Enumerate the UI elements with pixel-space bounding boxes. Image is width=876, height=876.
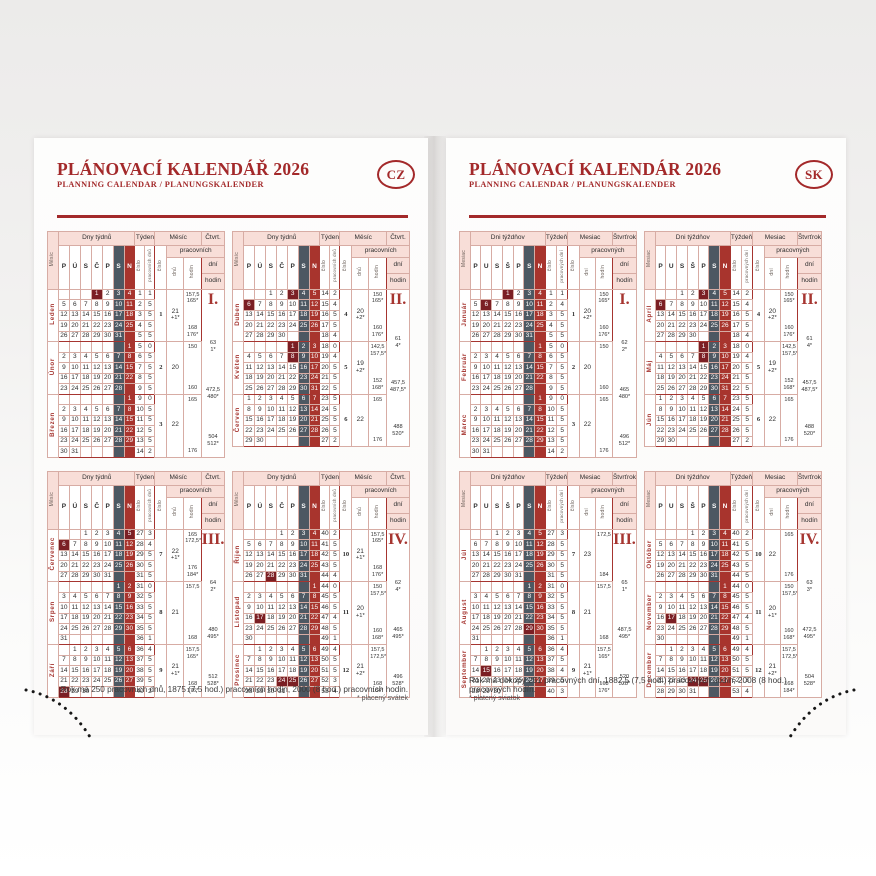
day-cell (698, 436, 709, 447)
month-number-cell: 8 (155, 582, 167, 645)
day-cell: 5 (492, 592, 503, 603)
day-cell: 5 (535, 529, 546, 540)
day-letter-cell: S (709, 485, 720, 529)
day-cell: 7 (113, 405, 124, 416)
month-number-header: číslo (155, 485, 167, 529)
week-workdays-cell: 5 (742, 363, 753, 374)
week-workdays-cell: 5 (145, 363, 155, 374)
day-cell: 22 (80, 561, 91, 572)
week-workdays-cell: 5 (557, 592, 568, 603)
month-group-header: Měsíc (155, 231, 202, 245)
week-number-cell: 26 (730, 426, 741, 437)
day-cell: 11 (481, 603, 492, 614)
page-header-sk: PLÁNOVACÍ KALENDÁR 2026 PLANNING CALENDA… (446, 138, 846, 212)
week-number-cell: 49 (730, 634, 741, 645)
day-cell: 27 (265, 384, 276, 395)
day-cell: 18 (492, 426, 503, 437)
week-workdays-cell: 3 (557, 529, 568, 540)
week-workdays-cell: 0 (145, 582, 155, 593)
week-workdays-cell: 5 (557, 384, 568, 395)
day-cell: 10 (113, 300, 124, 311)
day-letter-cell: N (124, 485, 135, 529)
day-cell (513, 634, 524, 645)
day-cell: 14 (69, 550, 80, 561)
day-cell: 13 (677, 363, 688, 374)
day-cell: 24 (470, 624, 481, 635)
day-cell: 30 (709, 384, 720, 395)
day-cell: 28 (102, 624, 113, 635)
week-number-cell: 5 (135, 342, 145, 353)
day-cell: 17 (276, 666, 287, 677)
day-letter-cell: Š (502, 245, 513, 289)
quarter-table-holder-q4: MesiacDni týždňovTýždeňMesiacŠtvrťrokPUS… (644, 471, 822, 698)
month-group-header: Mesiac (753, 471, 798, 485)
quarter-workdays: 631* (210, 340, 216, 355)
quarter-hours-header: hodín (612, 273, 636, 289)
day-cell: 23 (709, 373, 720, 384)
day-cell: 30 (666, 436, 677, 447)
day-cell: 16 (58, 426, 69, 437)
day-cell: 1 (276, 529, 287, 540)
day-cell: 8 (265, 300, 276, 311)
day-cell: 29 (113, 624, 124, 635)
day-cell: 30 (91, 571, 102, 582)
day-cell: 18 (524, 550, 535, 561)
day-cell: 2 (677, 645, 688, 656)
day-cell: 23 (243, 624, 254, 635)
day-cell: 13 (243, 310, 254, 321)
week-workdays-cell: 1 (557, 289, 568, 300)
day-cell (709, 331, 720, 342)
day-cell: 30 (698, 571, 709, 582)
quarter-group-header: Čtvrt. (386, 231, 409, 245)
week-workdays-cell: 5 (145, 310, 155, 321)
day-cell: 12 (470, 310, 481, 321)
month-hours-cell: 165176 (184, 394, 202, 457)
day-cell: 14 (720, 405, 731, 416)
week-workdays-cell: 4 (330, 571, 340, 582)
month-hours-header: hodin (184, 257, 202, 289)
day-cell: 23 (124, 613, 135, 624)
day-cell: 30 (243, 634, 254, 645)
quarter-table: MěsícDny týdnůTýdenMěsícČtvrt.PÚSČPSNčís… (232, 471, 410, 698)
day-cell: 9 (698, 540, 709, 551)
week-workdays-cell: 4 (741, 645, 752, 656)
day-cell (276, 582, 287, 593)
day-cell: 15 (535, 363, 546, 374)
day-cell: 26 (124, 561, 135, 572)
day-cell: 22 (287, 373, 298, 384)
day-cell: 14 (58, 666, 69, 677)
day-cell (265, 529, 276, 540)
week-workdays-cell: 4 (557, 645, 568, 656)
week-workdays-cell: 5 (330, 415, 340, 426)
month-hours-cell: 150157,5*160168* (369, 582, 387, 645)
week-number-cell: 41 (320, 540, 330, 551)
day-cell: 24 (481, 436, 492, 447)
day-cell (709, 582, 720, 593)
week-number-cell: 16 (730, 310, 741, 321)
day-cell: 26 (243, 571, 254, 582)
quarter-hours-75: 472,5495* (802, 627, 816, 642)
day-cell: 16 (513, 310, 524, 321)
day-cell: 25 (276, 426, 287, 437)
month-workdays-cell: 21+1* (167, 289, 184, 342)
day-cell: 20 (254, 561, 265, 572)
week-number-cell: 2 (135, 300, 145, 311)
day-letter-cell: Č (91, 485, 102, 529)
week-number-cell: 8 (135, 373, 145, 384)
day-cell (524, 571, 535, 582)
day-cell: 1 (655, 394, 666, 405)
day-cell: 17 (265, 415, 276, 426)
day-cell: 30 (535, 624, 546, 635)
day-cell: 17 (69, 373, 80, 384)
day-cell: 12 (254, 363, 265, 374)
day-cell: 31 (524, 331, 535, 342)
month-number-cell: 1 (155, 289, 167, 342)
week-workdays-cell: 4 (145, 645, 155, 656)
day-cell: 20 (513, 373, 524, 384)
day-cell: 16 (287, 550, 298, 561)
week-number-cell: 9 (545, 384, 556, 395)
day-cell: 31 (513, 571, 524, 582)
day-cell: 11 (720, 540, 731, 551)
day-cell: 10 (254, 603, 265, 614)
day-cell: 21 (492, 321, 503, 332)
day-cell: 11 (265, 603, 276, 614)
day-cell (276, 342, 287, 353)
week-workdays-cell: 2 (742, 289, 753, 300)
holiday-day-cell: 8 (698, 352, 709, 363)
day-cell: 21 (524, 426, 535, 437)
quarter-label: IV. (388, 533, 408, 547)
day-cell: 29 (698, 384, 709, 395)
quarter-label: IV. (800, 533, 820, 547)
day-cell: 26 (287, 426, 298, 437)
day-cell (513, 582, 524, 593)
day-cell (254, 289, 265, 300)
week-number-cell: 50 (730, 655, 741, 666)
quarter-tables-grid: MěsícDny týdnůTýdenMěsícČtvrt.PÚSČPSNčís… (47, 231, 412, 698)
quarter-group-header: Čtvrt. (201, 231, 224, 245)
day-cell: 6 (124, 645, 135, 656)
day-cell: 25 (298, 321, 309, 332)
week-workdays-cell: 0 (741, 582, 752, 593)
day-letter-cell: Ú (254, 245, 265, 289)
day-cell: 18 (655, 373, 666, 384)
day-cell: 6 (254, 540, 265, 551)
working-label-header: pracovních (167, 245, 225, 257)
quarter-summary-cell: II.614*457,5487,5*488520* (797, 289, 821, 447)
day-cell: 11 (677, 603, 688, 614)
day-letter-cell: P (698, 485, 709, 529)
day-cell (287, 582, 298, 593)
day-cell: 7 (254, 300, 265, 311)
day-cell: 16 (243, 613, 254, 624)
week-number-cell: 11 (135, 415, 145, 426)
day-cell: 18 (80, 373, 91, 384)
day-letter-cell: P (102, 485, 113, 529)
day-cell (698, 331, 709, 342)
week-workdays-cell: 1 (330, 634, 340, 645)
quarter-group-header: Štvrťrok (612, 231, 636, 245)
day-cell: 14 (470, 666, 481, 677)
month-workdays-cell: 20+1* (352, 582, 369, 645)
holiday-day-cell: 6 (243, 300, 254, 311)
day-cell: 14 (513, 603, 524, 614)
day-letter-cell: Č (276, 245, 287, 289)
quarter-label: III. (202, 533, 225, 547)
day-cell: 9 (655, 603, 666, 614)
month-number-cell: 6 (753, 394, 764, 447)
day-cell (524, 634, 535, 645)
day-cell: 22 (276, 561, 287, 572)
day-cell: 3 (470, 592, 481, 603)
day-cell: 4 (113, 529, 124, 540)
day-cell: 24 (513, 561, 524, 572)
day-cell: 8 (666, 655, 677, 666)
month-name-cell: August (460, 582, 471, 645)
day-cell: 5 (276, 592, 287, 603)
day-cell: 8 (677, 300, 688, 311)
day-cell: 8 (655, 405, 666, 416)
day-cell: 7 (243, 655, 254, 666)
week-workdays-cell: 5 (145, 666, 155, 677)
day-cell: 17 (677, 415, 688, 426)
week-number-header: číslo (320, 485, 330, 529)
day-cell: 11 (287, 655, 298, 666)
week-workdays-cell: 4 (330, 352, 340, 363)
day-cell (470, 529, 481, 540)
day-cell: 14 (677, 550, 688, 561)
week-workdays-cell: 5 (145, 436, 155, 447)
day-cell: 27 (102, 436, 113, 447)
day-cell (535, 447, 546, 458)
week-group-header: Týden (320, 231, 340, 245)
day-cell: 1 (677, 289, 688, 300)
day-cell: 3 (276, 645, 287, 656)
day-cell (91, 634, 102, 645)
day-letter-cell: P (698, 245, 709, 289)
day-cell: 2 (492, 645, 503, 656)
day-cell: 13 (698, 603, 709, 614)
day-cell: 30 (655, 634, 666, 645)
day-letter-cell: S (80, 245, 91, 289)
day-cell: 1 (254, 645, 265, 656)
day-cell: 10 (102, 540, 113, 551)
day-cell: 4 (265, 592, 276, 603)
week-number-cell: 23 (730, 394, 741, 405)
day-cell: 16 (80, 666, 91, 677)
day-letter-cell: N (124, 245, 135, 289)
paid-holiday-note: * placený svátek (57, 695, 408, 702)
month-number-cell: 5 (340, 342, 352, 395)
week-workdays-cell: 4 (742, 331, 753, 342)
day-cell: 4 (524, 529, 535, 540)
month-hours-header: hodin (184, 497, 202, 529)
week-number-cell: 42 (730, 550, 741, 561)
day-cell: 4 (698, 645, 709, 656)
week-number-cell: 48 (730, 624, 741, 635)
day-cell (720, 331, 731, 342)
day-cell: 16 (470, 373, 481, 384)
day-letter-cell: S (709, 245, 720, 289)
month-hours-cell: 150157,5*160168* (781, 582, 798, 645)
day-cell: 14 (243, 666, 254, 677)
week-workdays-cell: 5 (741, 592, 752, 603)
day-cell: 25 (492, 384, 503, 395)
day-cell: 10 (502, 655, 513, 666)
month-column-header: Mesiac (645, 471, 656, 529)
day-cell: 22 (124, 426, 135, 437)
day-cell: 25 (243, 384, 254, 395)
day-cell: 23 (655, 624, 666, 635)
day-cell: 27 (513, 436, 524, 447)
day-cell (265, 634, 276, 645)
week-number-cell: 35 (545, 624, 556, 635)
day-cell: 7 (309, 394, 320, 405)
month-hours-header: hodín (596, 257, 613, 289)
day-cell: 23 (102, 321, 113, 332)
quarter-summary-cell: IV.624*465495*496528* (386, 529, 409, 697)
day-cell: 16 (124, 603, 135, 614)
day-cell: 2 (666, 394, 677, 405)
day-cell (298, 634, 309, 645)
day-cell: 7 (655, 655, 666, 666)
day-cell: 11 (80, 415, 91, 426)
day-cell: 10 (666, 603, 677, 614)
day-cell: 14 (524, 363, 535, 374)
week-number-cell: 8 (545, 373, 556, 384)
quarter-group-header: Čtvrt. (386, 471, 409, 485)
day-cell: 2 (80, 645, 91, 656)
day-letter-cell: Š (687, 485, 698, 529)
day-cell: 3 (91, 645, 102, 656)
day-cell: 16 (470, 426, 481, 437)
day-cell: 14 (276, 363, 287, 374)
day-cell: 14 (492, 310, 503, 321)
day-cell: 20 (287, 613, 298, 624)
day-cell: 28 (481, 571, 492, 582)
day-cell: 12 (309, 300, 320, 311)
day-cell: 27 (254, 571, 265, 582)
month-number-header: číslo (568, 245, 579, 289)
week-number-cell: 4 (135, 321, 145, 332)
day-cell: 19 (91, 373, 102, 384)
day-cell: 9 (298, 352, 309, 363)
day-cell: 27 (677, 384, 688, 395)
week-number-cell: 27 (730, 436, 741, 447)
quarter-label: II. (801, 293, 817, 307)
week-workdays-cell: 5 (145, 352, 155, 363)
week-workdays-cell: 5 (557, 603, 568, 614)
day-cell: 21 (69, 561, 80, 572)
week-workdays-cell: 5 (330, 624, 340, 635)
day-cell: 9 (470, 415, 481, 426)
month-days-header: dní (764, 257, 780, 289)
quarter-hours-header: hodin (201, 273, 224, 289)
day-cell: 22 (243, 426, 254, 437)
day-cell: 7 (524, 405, 535, 416)
day-cell: 19 (698, 415, 709, 426)
week-number-cell: 25 (730, 415, 741, 426)
day-cell: 19 (655, 561, 666, 572)
day-cell: 1 (309, 582, 320, 593)
month-hours-header: hodin (369, 257, 387, 289)
day-cell: 29 (265, 331, 276, 342)
day-cell: 15 (720, 603, 731, 614)
day-cell: 18 (287, 666, 298, 677)
week-number-cell: 25 (320, 415, 330, 426)
day-cell: 25 (80, 436, 91, 447)
week-workdays-cell: 2 (330, 289, 340, 300)
day-cell: 5 (309, 289, 320, 300)
day-cell: 12 (276, 603, 287, 614)
quarter-days-header: dní (612, 497, 636, 513)
day-cell (720, 571, 731, 582)
week-number-cell: 31 (545, 571, 556, 582)
day-cell: 15 (124, 415, 135, 426)
month-workdays-cell: 22 (764, 529, 780, 582)
week-workdays-cell: 0 (557, 342, 568, 353)
quarter-table-holder-q2: MěsícDny týdnůTýdenMěsícČtvrt.PÚSČPSNčís… (232, 231, 410, 448)
week-workdays-cell: 5 (330, 321, 340, 332)
week-workdays-cell: 5 (741, 655, 752, 666)
month-name-cell: Január (460, 289, 471, 342)
day-cell: 17 (298, 550, 309, 561)
week-workdays-cell: 5 (557, 571, 568, 582)
day-cell (254, 342, 265, 353)
week-workdays-cell: 5 (557, 561, 568, 572)
month-number-cell: 4 (340, 289, 352, 342)
month-workdays-cell: 22 (167, 394, 184, 457)
day-cell: 25 (687, 426, 698, 437)
day-cell: 12 (124, 540, 135, 551)
day-cell: 3 (666, 592, 677, 603)
day-cell (535, 331, 546, 342)
week-workdays-cell: 5 (557, 363, 568, 374)
month-number-header: číslo (753, 245, 764, 289)
day-cell: 19 (720, 310, 731, 321)
day-cell: 13 (470, 550, 481, 561)
quarter-table-holder-q1: MěsícDny týdnůTýdenMěsícČtvrt.PÚSČPSNčís… (47, 231, 225, 458)
day-cell: 20 (709, 415, 720, 426)
week-group-header: Týden (135, 471, 155, 485)
week-number-header: číslo (135, 245, 145, 289)
day-cell: 10 (677, 405, 688, 416)
day-cell: 26 (91, 436, 102, 447)
day-cell: 7 (276, 352, 287, 363)
quarter-days-header: dní (201, 257, 224, 273)
day-cell: 11 (113, 540, 124, 551)
day-cell: 20 (677, 373, 688, 384)
day-cell: 11 (492, 363, 503, 374)
quarter-days-header: dní (797, 257, 821, 273)
day-cell (309, 331, 320, 342)
month-workdays-cell: 20+1* (764, 582, 780, 645)
day-cell: 20 (69, 321, 80, 332)
day-cell: 9 (470, 363, 481, 374)
month-days-header: dnů (167, 497, 184, 529)
quarter-table: MesiacDni týždňovTýždeňMesiacŠtvrťrokPUS… (459, 231, 637, 458)
day-cell: 8 (535, 352, 546, 363)
day-cell: 12 (91, 415, 102, 426)
day-cell: 15 (113, 603, 124, 614)
week-number-cell: 37 (135, 655, 145, 666)
day-cell: 18 (492, 373, 503, 384)
week-number-cell: 30 (545, 561, 556, 572)
